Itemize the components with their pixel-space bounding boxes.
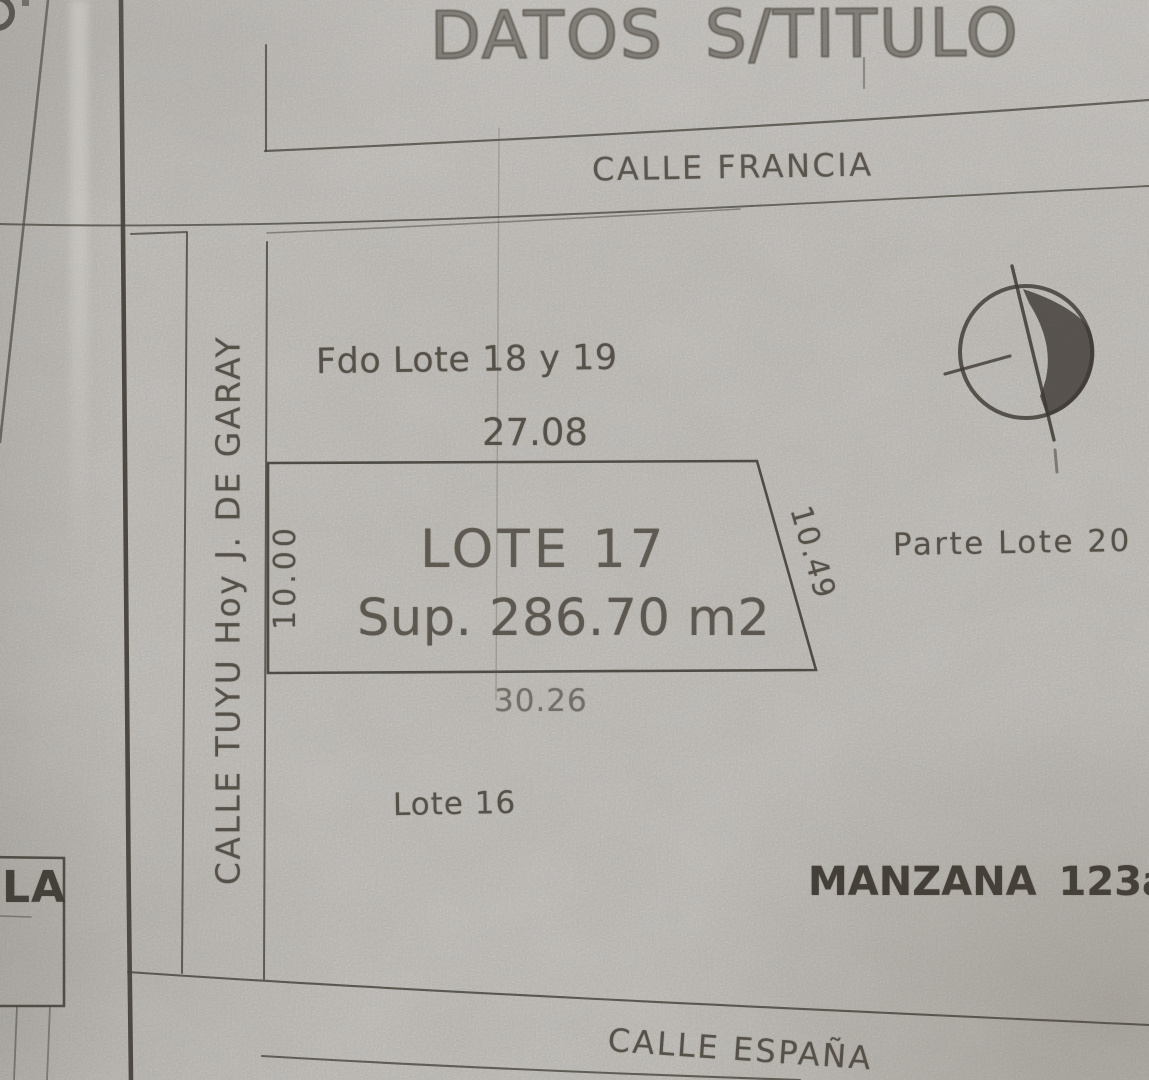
la-box-below-line-2 [47,1006,50,1080]
north-arrow-needle-tail [1055,450,1057,472]
block-top-edge [267,209,740,233]
left-street-line [0,0,48,442]
north-arrow-crossbar [945,356,1010,374]
lot-area: Sup. 286.70 m2 [357,593,770,644]
block-west-edge [264,242,267,979]
dimension-north: 27.08 [482,414,588,451]
la-box-below-line-1 [14,1006,17,1080]
edge-fragment-label: LA [2,866,66,910]
road-centerline-heavy [121,0,131,1080]
sidewalk-top-tick [131,232,187,234]
corner-dot [22,0,29,6]
street-label-tuyu-garay: CALLE TUYU Hoy J. DE GARAY [212,335,245,885]
street-line-francia [0,186,1149,225]
north-arrow-icon [945,266,1094,472]
scanned-survey-plan: DATOS S/TITULO CALLE FRANCIA Fdo Lote 18… [0,0,1149,1080]
dimension-south: 30.26 [494,686,588,717]
dimension-west: 10.00 [271,524,301,630]
neighbor-label-south: Lote 16 [393,788,517,821]
street-label-francia: CALLE FRANCIA [592,149,874,186]
block-label: MANZANA 123a [808,862,1149,902]
sheet-title: DATOS S/TITULO [430,0,1020,69]
corner-mark [0,0,12,28]
la-box-inner-line [0,916,31,917]
lot-title: LOTE 17 [420,523,668,576]
neighbor-label-north: Fdo Lote 18 y 19 [316,341,618,380]
neighbor-label-east: Parte Lote 20 [893,526,1132,561]
title-box-bottom-edge [265,100,1149,151]
sidewalk-line [182,233,187,973]
street-line-espana-upper [128,972,1149,1025]
